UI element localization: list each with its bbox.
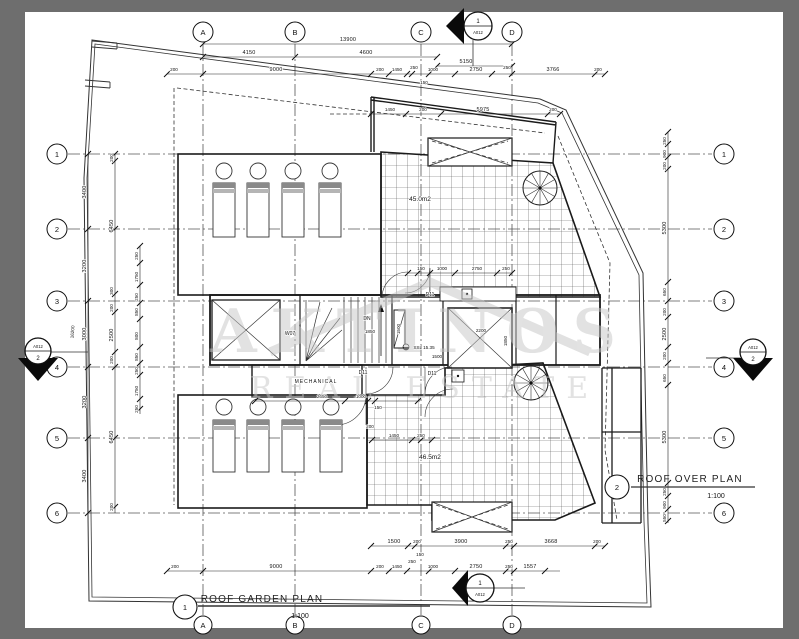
- dim-label: 1000: [437, 266, 448, 271]
- dim-label: 250: [408, 559, 416, 564]
- grid-row-bubble: 3: [55, 297, 59, 306]
- section-marker-sheet: A012: [748, 345, 758, 350]
- stair-direction-label: DN: [363, 316, 371, 322]
- dim-label: 200: [376, 67, 384, 72]
- dim-label: 9000: [269, 67, 282, 73]
- door-tag: D11: [428, 371, 437, 377]
- dim-label: 200: [109, 154, 114, 162]
- lounger: [247, 399, 269, 472]
- lounger: [213, 163, 235, 237]
- dim-label: 2500: [662, 327, 668, 340]
- watermark-line1: AKTINOS: [209, 297, 630, 367]
- door-tag: D11: [359, 370, 368, 376]
- drawing-scale: 1:100: [291, 613, 309, 620]
- dim-label: 3200: [82, 395, 88, 408]
- dim-label: 250: [134, 367, 139, 375]
- dim-label: 150: [417, 266, 425, 271]
- door-tag: D11: [426, 292, 435, 298]
- dim-label: 250: [410, 65, 418, 70]
- lounger: [282, 163, 304, 237]
- dim-label: 250: [505, 539, 513, 544]
- title-number: 1: [183, 603, 187, 612]
- dim-label: 3000: [82, 327, 88, 340]
- pergola-upper: [428, 138, 512, 166]
- dim-label: 150: [416, 552, 424, 557]
- grid-col-bubble: A: [200, 621, 205, 630]
- dim-label: 850: [134, 353, 139, 361]
- dim-label: 1450: [385, 107, 396, 112]
- lounger: [319, 163, 341, 237]
- grid-col-bubble: D: [509, 28, 515, 37]
- dim-label: 250: [417, 433, 425, 438]
- grid-col-bubble: C: [418, 621, 424, 630]
- watermark: AKTINOS REAL ESTATE: [209, 282, 630, 406]
- window-tag: W07: [285, 331, 296, 337]
- dim-label: 2750: [469, 67, 482, 73]
- dim-label: 9000: [269, 564, 282, 570]
- dim-label: 5150: [459, 59, 472, 65]
- dim-label: 1850: [503, 335, 508, 346]
- dim-label: 200: [171, 564, 179, 569]
- dim-label: 1850: [365, 329, 376, 334]
- lounger: [247, 163, 269, 237]
- dim-label: 1000: [428, 67, 439, 72]
- dim-label: 3200: [82, 259, 88, 272]
- dim-label: 250: [505, 564, 513, 569]
- grid-col-bubble: B: [292, 621, 297, 630]
- spiral-stair-upper: [523, 171, 557, 205]
- dim-label: 200: [109, 503, 114, 511]
- dim-label: 200: [170, 67, 178, 72]
- dim-label: 16200: [70, 325, 76, 339]
- grid-row-bubble: 3: [722, 297, 726, 306]
- dim-label: 250: [662, 137, 667, 145]
- grid-row-bubble: 5: [55, 434, 59, 443]
- dim-label: 1750: [134, 385, 139, 396]
- dim-label: 2650: [317, 394, 328, 399]
- dim-label: 1500: [432, 354, 443, 359]
- dim-label: 4150: [242, 50, 255, 56]
- dim-label: 1500: [396, 323, 401, 334]
- dim-label: 200: [594, 67, 602, 72]
- dim-label: 3668: [544, 539, 557, 545]
- dim-label: 1000: [356, 394, 367, 399]
- dim-label: 5300: [662, 221, 668, 234]
- dim-label: 3400: [82, 469, 88, 482]
- dim-label: 650: [662, 374, 667, 382]
- grid-row-bubble: 6: [722, 509, 726, 518]
- dim-label: 150: [420, 80, 428, 85]
- drawing-title: ROOF OVER PLAN: [637, 474, 743, 485]
- dim-label: 250: [134, 405, 139, 413]
- dim-label: 250: [502, 266, 510, 271]
- dim-label: 5300: [662, 430, 668, 443]
- dim-label: 1000: [428, 564, 439, 569]
- section-marker-sheet: A012: [33, 344, 43, 349]
- dim-label: 200: [413, 539, 421, 544]
- dim-label: 550: [662, 514, 667, 522]
- section-marker-sheet: A012: [473, 30, 483, 35]
- lounger: [282, 399, 304, 472]
- architectural-drawing-sheet: AKTINOS REAL ESTATE 13900 4150 4600 5150…: [0, 0, 799, 639]
- dim-label: 250: [662, 488, 667, 496]
- section-marker-sheet: A012: [475, 592, 485, 597]
- drawing-title: ROOF GARDEN PLAN: [201, 594, 324, 605]
- lounger: [320, 399, 342, 472]
- grid-row-bubble: 4: [722, 363, 726, 372]
- dim-label: 1500: [387, 539, 400, 545]
- dim-label: 200: [366, 424, 374, 429]
- dim-label: 13900: [340, 37, 356, 43]
- dim-label: 150: [374, 405, 382, 410]
- dim-label: 4600: [359, 50, 372, 56]
- pergola-lower: [432, 502, 512, 532]
- grid-col-bubble: D: [509, 621, 515, 630]
- dim-label: 200: [109, 304, 114, 312]
- dim-label: 900: [662, 501, 667, 509]
- dim-label: 850: [134, 308, 139, 316]
- dim-label: 3900: [454, 539, 467, 545]
- grid-row-bubble: 2: [55, 225, 59, 234]
- dim-label: 6450: [109, 430, 115, 443]
- dim-label: 1557: [523, 564, 536, 570]
- dim-label: 200: [593, 539, 601, 544]
- grid-col-bubble: A: [200, 28, 205, 37]
- dim-label: 250: [134, 252, 139, 260]
- lounger: [213, 399, 235, 472]
- dim-label: 900: [662, 150, 667, 158]
- grid-col-bubble: B: [292, 28, 297, 37]
- dim-label: 2500: [109, 328, 115, 341]
- title-number: 2: [615, 483, 619, 492]
- dim-label: 800: [134, 332, 139, 340]
- dim-label: 200: [419, 107, 427, 112]
- dim-label: 1450: [392, 67, 403, 72]
- dim-label: 200: [109, 356, 114, 364]
- dim-label: 3766: [546, 67, 559, 73]
- area-label-upper: 45.0m2: [409, 196, 431, 203]
- dim-label: 6450: [109, 219, 115, 232]
- dim-label: 650: [662, 288, 667, 296]
- grid-row-bubble: 1: [55, 150, 59, 159]
- grid-row-bubble: 2: [722, 225, 726, 234]
- grid-row-bubble: 6: [55, 509, 59, 518]
- grid-row-bubble: 5: [722, 434, 726, 443]
- dim-label: 200: [662, 308, 667, 316]
- grid-row-bubble: 4: [55, 363, 59, 372]
- level-label: SSL 15.35: [413, 345, 435, 350]
- dim-label: 300: [109, 287, 114, 295]
- grid-col-bubble: C: [418, 28, 424, 37]
- dim-label: 1750: [134, 271, 139, 282]
- room-label-mechanical: MECHANICAL: [295, 379, 338, 385]
- dim-label: 200: [376, 564, 384, 569]
- dim-label: 5975: [476, 107, 489, 113]
- dim-label: 1450: [389, 433, 400, 438]
- dim-label: 200: [549, 107, 557, 112]
- area-label-lower: 46.5m2: [419, 454, 441, 461]
- drawing-scale: 1:100: [707, 493, 725, 500]
- dim-label: 2750: [469, 564, 482, 570]
- dim-label: 3400: [82, 185, 88, 198]
- grid-row-bubble: 1: [722, 150, 726, 159]
- dim-label: 200: [662, 162, 667, 170]
- dim-label: 250: [503, 65, 511, 70]
- dim-label: 200: [662, 352, 667, 360]
- dim-label: 1450: [392, 564, 403, 569]
- dim-label: 250: [134, 293, 139, 301]
- dim-label: 2750: [472, 266, 483, 271]
- dim-label: 2200: [476, 328, 487, 333]
